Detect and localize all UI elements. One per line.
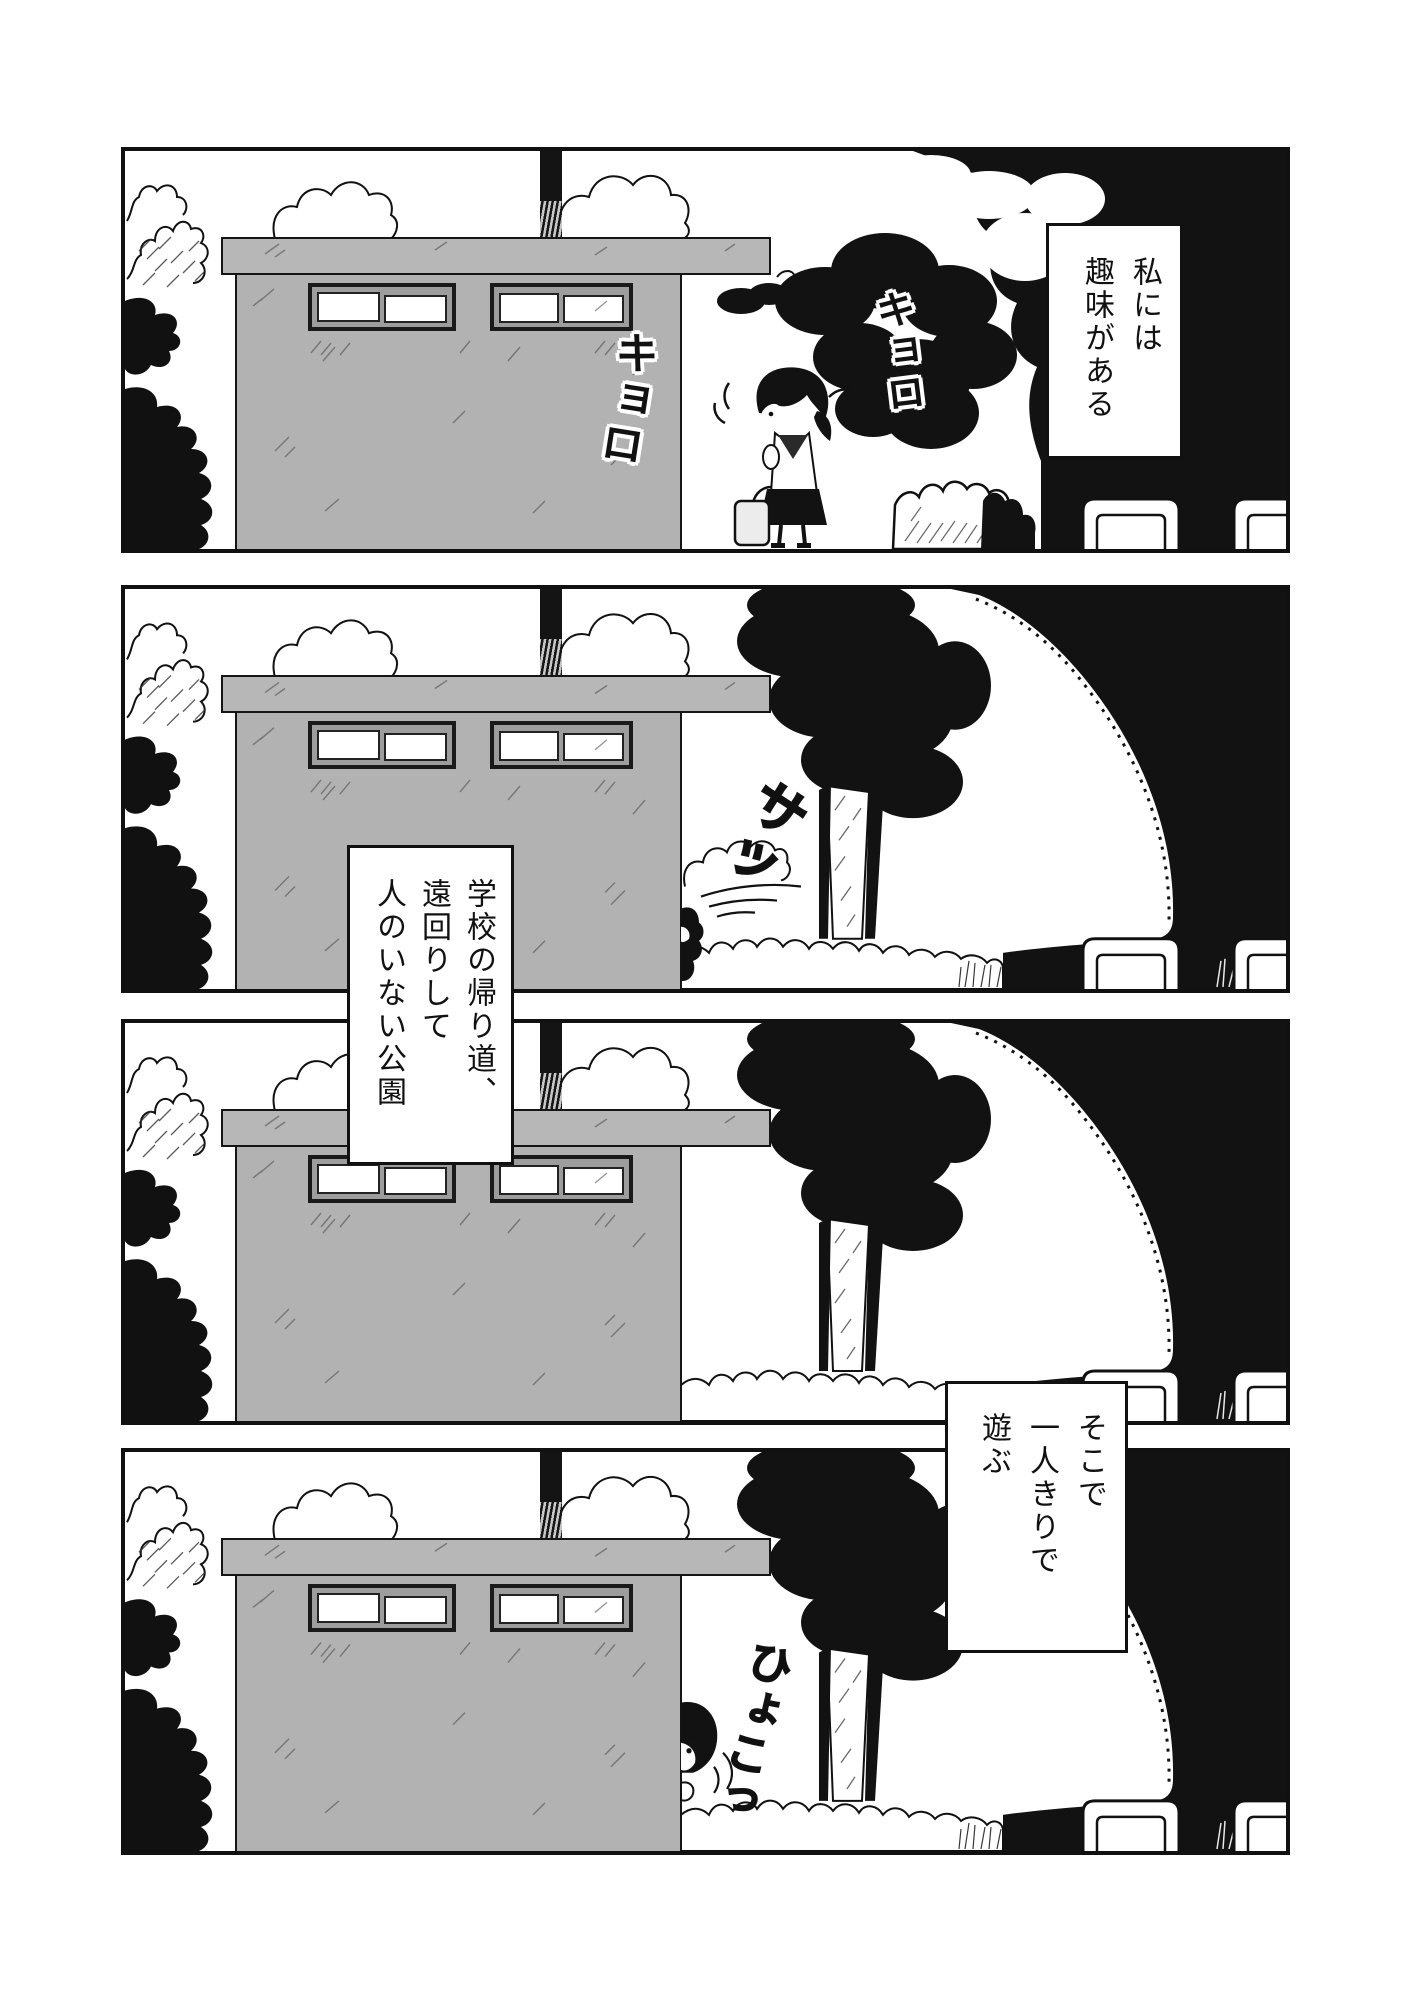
panel-2: サッ [121, 585, 1290, 993]
girl-slipping-behind-building [125, 589, 1286, 989]
narration-box-1: 私には 趣味がある [1046, 223, 1183, 459]
narration-box-3: そこで 一人きりで 遊ぶ [945, 1381, 1128, 1653]
narration-box-2: 学校の帰り道、 遠回りして 人のいない公園 [347, 845, 514, 1165]
panel-3 [121, 1019, 1290, 1425]
texture-scratches [125, 1023, 1286, 1421]
manga-page: キョロ キョロ サッ [0, 0, 1416, 2000]
